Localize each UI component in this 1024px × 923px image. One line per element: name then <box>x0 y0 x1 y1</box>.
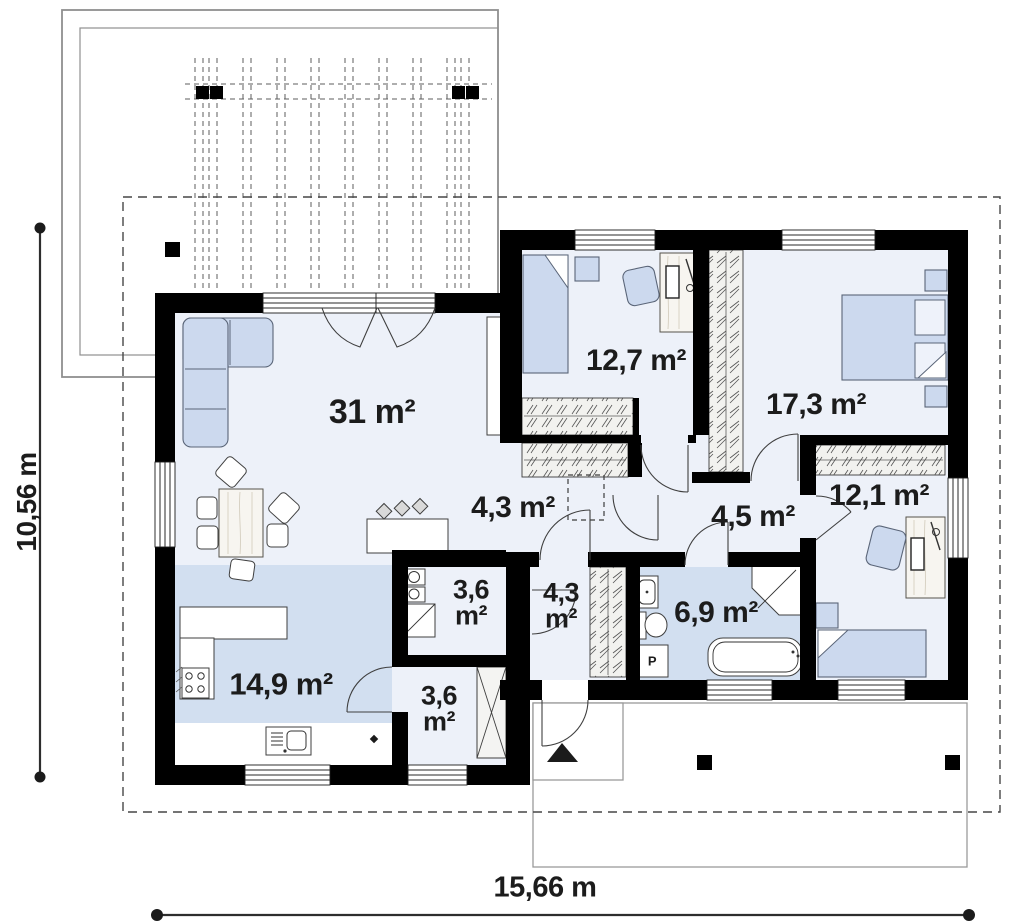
room-label-kitchen: 14,9 m² <box>229 669 332 700</box>
terrace <box>533 703 967 867</box>
bathtub <box>708 638 802 676</box>
window-living-left <box>155 462 175 547</box>
room-label-bedroom1: 12,7 m² <box>586 346 686 376</box>
nightstand <box>925 386 947 407</box>
closet-entry <box>590 567 626 677</box>
room-label-entry: 4,3 m² <box>530 580 592 633</box>
room-label-living: 31 m² <box>329 395 415 429</box>
floor-plan-drawing <box>0 0 1024 923</box>
window-bedroom1 <box>575 230 655 250</box>
room-label-bedroom2: 17,3 m² <box>766 390 866 420</box>
nightstand <box>925 270 947 291</box>
entry-porch <box>533 703 623 780</box>
desk <box>906 517 945 598</box>
window-bedroom3-bottom <box>838 680 905 700</box>
closet-hallway <box>522 443 628 477</box>
floor-plan-page: 31 m² 12,7 m² 17,3 m² 4,3 m² 4,5 m² 12,1… <box>0 0 1024 923</box>
washer-label: P <box>648 655 656 668</box>
room-label-pantry: 3,6 m² <box>440 577 502 630</box>
room-label-bedroom3: 12,1 m² <box>829 481 929 511</box>
closet-bedroom3 <box>808 445 945 475</box>
dimension-label-width: 15,66 m <box>494 874 597 903</box>
kitchen-sink <box>266 727 311 755</box>
front-door-opening <box>542 680 588 700</box>
window-bedroom3-right <box>948 478 968 558</box>
pergola-posts <box>165 86 479 257</box>
wardrobe-bedroom2 <box>709 250 743 472</box>
terrace-post <box>945 755 960 770</box>
room-label-storage: 3,6 m² <box>408 683 470 736</box>
desk-chair <box>622 265 661 307</box>
dimension-label-height: 10,56 m <box>13 452 41 551</box>
closet-bedroom1 <box>522 398 633 435</box>
room-label-hallway: 4,3 m² <box>471 493 555 523</box>
window-bathroom <box>707 680 772 700</box>
nightstand <box>575 257 599 281</box>
desk <box>660 253 698 332</box>
window-kitchen-1 <box>245 765 330 785</box>
room-label-bathroom: 6,9 m² <box>674 598 758 628</box>
window-kitchen-2 <box>408 765 467 785</box>
nightstand <box>816 603 838 628</box>
window-bedroom2 <box>782 230 875 250</box>
room-label-corridor: 4,5 m² <box>711 502 795 532</box>
terrace-post <box>697 755 712 770</box>
